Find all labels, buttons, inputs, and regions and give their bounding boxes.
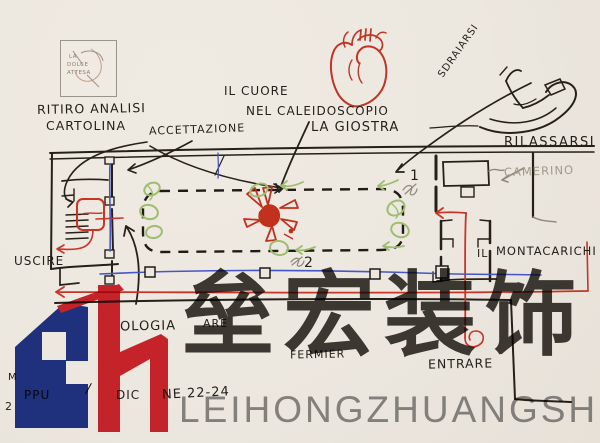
label-montacarichi-il: IL <box>477 248 488 259</box>
logo-blue-house <box>15 303 88 428</box>
label-montacarichi: MONTACARICHI <box>496 246 597 258</box>
watermark-latin-text: LEIHONGZHUANGSHI <box>179 391 600 428</box>
sketch-photo: LA DOLCE ATTESA RITIRO ANALISI CARTOLINA… <box>0 0 600 443</box>
watermark-logo <box>0 0 200 443</box>
watermark-chinese-text: 垒宏装饰 <box>182 268 586 365</box>
label-rilassarsi: RILASSARSI <box>504 136 595 149</box>
label-camerino: CAMERINO <box>504 165 574 179</box>
label-nel-caleidoscopio: NEL CALEIDOSCOPIO <box>246 105 389 117</box>
label-sdraiarsi: SDRAIARSI <box>437 23 481 80</box>
label-la-giostra: LA GIOSTRA <box>311 121 399 134</box>
label-number-1: 1 <box>410 169 420 183</box>
label-il-cuore: IL CUORE <box>224 85 289 97</box>
